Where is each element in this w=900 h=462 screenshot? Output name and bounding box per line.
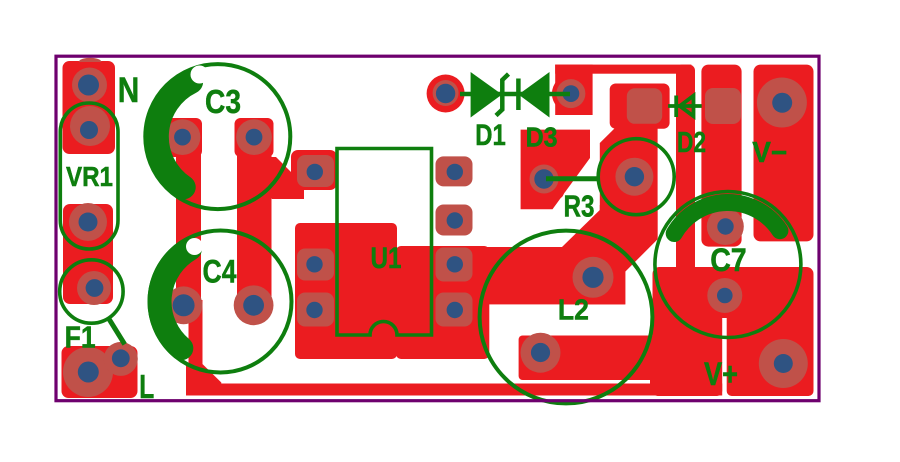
svg-text:C4: C4 [203,254,237,290]
svg-text:D3: D3 [526,121,558,152]
svg-text:V−: V− [752,137,787,169]
svg-text:U1: U1 [371,242,402,275]
svg-text:N: N [118,70,140,110]
svg-text:D2: D2 [677,127,706,159]
svg-text:L: L [139,369,154,406]
svg-text:R3: R3 [564,189,595,224]
svg-text:V+: V+ [704,356,738,392]
svg-text:C3: C3 [205,83,241,120]
svg-text:F1: F1 [65,320,96,355]
svg-text:C7: C7 [710,242,747,278]
svg-text:VR1: VR1 [66,161,113,192]
svg-text:L2: L2 [558,295,589,327]
svg-text:D1: D1 [475,119,506,152]
